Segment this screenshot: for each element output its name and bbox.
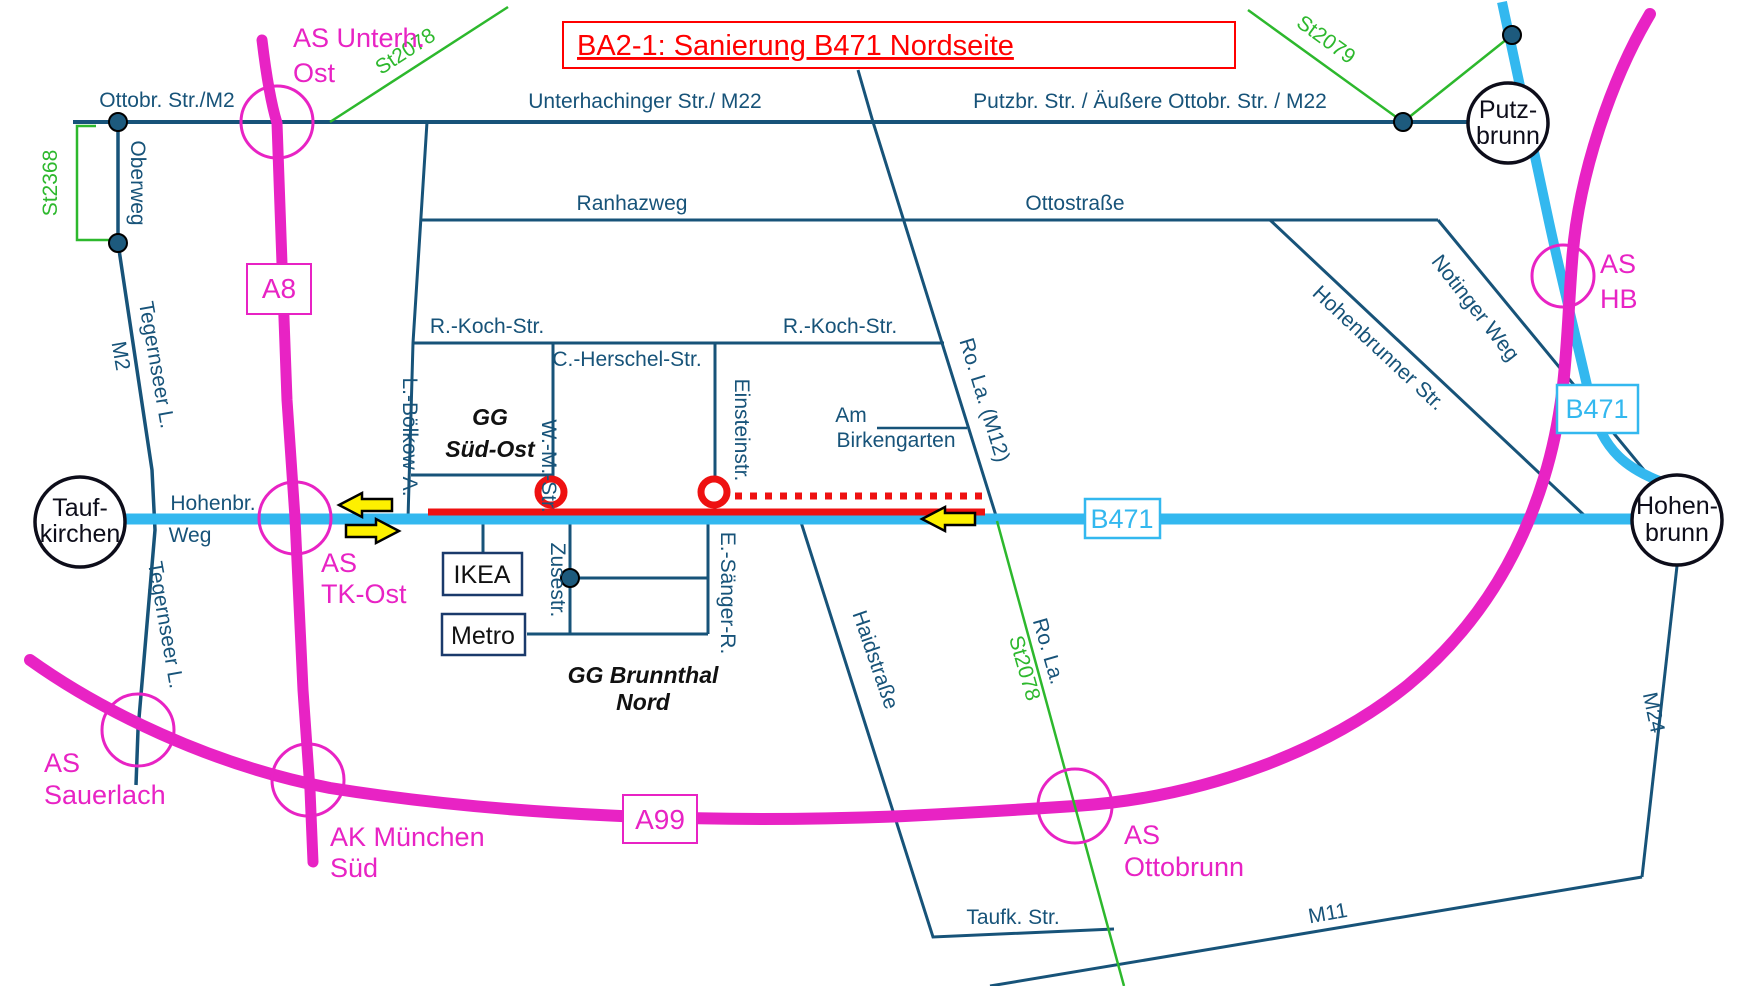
metro-label: Metro xyxy=(451,622,515,650)
putzbrunn-label-1: Putz- xyxy=(1479,96,1537,124)
label-st2368: St2368 xyxy=(39,150,62,217)
label-rkoch-east: R.-Koch-Str. xyxy=(783,315,897,338)
label-boelkow: L.-Bölkow-A. xyxy=(398,377,421,496)
gg-brunnthal-label-2: Nord xyxy=(616,689,671,715)
a99-label: A99 xyxy=(635,804,685,835)
as-hb-label-2: HB xyxy=(1600,284,1638,314)
label-ottobr-m2: Ottobr. Str./M2 xyxy=(99,89,234,112)
label-st2079: St2079 xyxy=(1292,11,1359,69)
label-birkengarten: Birkengarten xyxy=(836,429,955,452)
label-putzbr-str: Putzbr. Str. / Äußere Ottobr. Str. / M22 xyxy=(973,90,1327,113)
label-taufk-str: Taufk. Str. xyxy=(966,906,1059,929)
label-ranhazweg: Ranhazweg xyxy=(577,192,688,215)
gg-sued-ost-label-2: Süd-Ost xyxy=(445,436,536,462)
construction-ring-einstein xyxy=(701,479,727,505)
label-wm-str: W.-M.-Str. xyxy=(537,419,560,512)
a8-label: A8 xyxy=(262,273,296,304)
gg-sued-ost-label-1: GG xyxy=(472,404,508,430)
road-haidstrasse-taufk xyxy=(800,519,1114,937)
label-tegernseer-south: Tegernseer L. xyxy=(143,560,188,690)
as-ottobrunn-label-1: AS xyxy=(1124,820,1160,850)
map-title: BA2-1: Sanierung B471 Nordseite xyxy=(577,30,1014,62)
poi-labels: IKEA Metro xyxy=(451,561,515,650)
junction-dot-oberweg xyxy=(109,234,127,252)
label-hohenbr: Hohenbr. xyxy=(170,492,255,515)
as-sauerlach-label-1: AS xyxy=(44,748,80,778)
junction-dot-st2079 xyxy=(1394,113,1412,131)
label-tegernseer-north: Tegernseer L. xyxy=(134,300,179,430)
label-m24: M24 xyxy=(1638,690,1669,735)
ak-muenchen-label-1: AK München xyxy=(330,822,485,852)
b471-label-east: B471 xyxy=(1565,394,1628,424)
label-herschel: C.-Herschel-Str. xyxy=(552,348,701,371)
as-tk-ost-label-1: AS xyxy=(321,548,357,578)
label-unterhachinger: Unterhachinger Str./ M22 xyxy=(528,90,761,113)
as-hb-label-1: AS xyxy=(1600,249,1636,279)
interchange-circles xyxy=(102,86,1594,843)
junction-dot-b471 xyxy=(1503,26,1521,44)
construction-map: BA2-1: Sanierung B471 Nordseite Ottobr. … xyxy=(0,0,1753,986)
st2368-bracket xyxy=(77,126,112,240)
detour-arrow-west-left xyxy=(339,493,392,517)
as-unterhaching-label-2: Ost xyxy=(293,58,336,88)
ikea-label: IKEA xyxy=(454,561,511,589)
as-tk-ost-label-2: TK-Ost xyxy=(321,579,407,609)
label-am: Am xyxy=(835,404,867,427)
label-ottostrasse: Ottostraße xyxy=(1025,192,1124,215)
label-tegernseer-m2: M2 xyxy=(107,340,135,373)
as-ottobrunn-label-2: Ottobrunn xyxy=(1124,852,1244,882)
label-hohenbr-weg: Weg xyxy=(169,524,212,547)
putzbrunn-label-2: brunn xyxy=(1476,122,1540,150)
label-ro-la-m12: Ro. La. (M12) xyxy=(954,335,1014,465)
junction-dot-ottobr xyxy=(109,113,127,131)
taufkirchen-label-1: Tauf- xyxy=(52,494,108,522)
label-m11: M11 xyxy=(1307,899,1350,928)
label-zusestr: Zusestr. xyxy=(546,543,569,618)
hohenbrunn-label-1: Hohen- xyxy=(1636,492,1718,520)
label-hohenbrunner: Hohenbrunner Str. xyxy=(1308,281,1449,415)
label-oberweg: Oberweg xyxy=(126,140,149,225)
taufkirchen-label-2: kirchen xyxy=(40,520,121,548)
ak-muenchen-label-2: Süd xyxy=(330,853,378,883)
b471-label-center: B471 xyxy=(1090,504,1153,534)
label-saenger: E.-Sänger-R. xyxy=(716,532,739,655)
a8-line xyxy=(262,40,313,862)
as-unterhaching-label-1: AS Unterh. xyxy=(293,23,425,53)
gg-brunnthal-label-1: GG Brunnthal xyxy=(568,662,719,688)
label-rkoch-west: R.-Koch-Str. xyxy=(430,315,544,338)
label-einsteinstr: Einsteinstr. xyxy=(730,379,753,482)
hohenbrunn-label-2: brunn xyxy=(1645,519,1709,547)
as-sauerlach-label-2: Sauerlach xyxy=(44,780,166,810)
